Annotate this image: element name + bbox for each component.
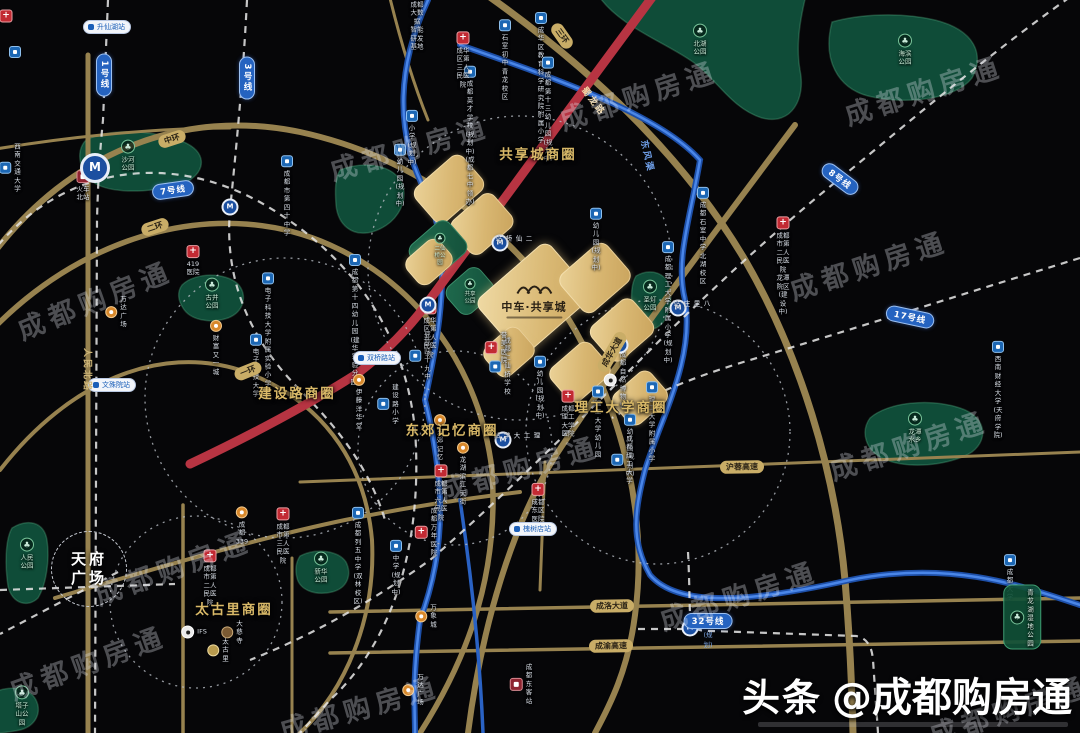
brown-icon — [221, 626, 233, 638]
school-icon — [406, 110, 418, 122]
park-label: 二仙桥公园 — [435, 246, 446, 267]
glyph-dot — [666, 245, 670, 249]
school-icon — [377, 398, 389, 410]
poi-label: 财富又一城 — [210, 334, 222, 376]
hospital-icon: + — [485, 342, 498, 355]
poi-school: 建设路小学 — [377, 383, 399, 425]
poi-school: 理工大学附属小学 — [646, 381, 658, 463]
station-pill: 槐树店站 — [509, 522, 557, 536]
metro-station-name: 二仙桥站 — [493, 235, 533, 243]
tree-icon: ♣ — [1010, 610, 1024, 624]
park-label: 人民公园 — [20, 554, 34, 571]
school-icon — [611, 454, 623, 466]
tree-icon: ♣ — [435, 233, 446, 244]
poi-label: 万象城 — [430, 603, 437, 628]
mall-icon — [415, 610, 427, 622]
road-label: 成渝高速 — [589, 639, 633, 653]
glyph-dot — [356, 511, 360, 515]
tianfu-line1: 天府 — [71, 550, 107, 569]
metro-line-pill: 1号线 — [96, 54, 112, 97]
glyph-dot — [461, 446, 465, 450]
glyph-dot — [546, 61, 550, 65]
tree-icon: ♣ — [465, 278, 476, 289]
poi-school: 石室初中 青龙校区 — [499, 19, 511, 101]
glyph-dot — [13, 50, 17, 54]
park-label: 北湖公园 — [693, 40, 707, 57]
business-circle-label: 共享城商圈 — [499, 143, 577, 163]
glyph-dot — [1008, 558, 1012, 562]
station-pill-label: 升仙湖站 — [97, 22, 125, 32]
poi-label: 成都第十四幼儿园 (建华实验分园) — [349, 268, 361, 386]
road-label: 沪蓉高速 — [720, 460, 764, 474]
tree-icon: ♣ — [121, 140, 135, 154]
poi-label: 成都市第四十中学 — [281, 169, 293, 237]
station-pill-label: 文殊院站 — [102, 380, 130, 390]
project-logo: 中车·共享城 — [501, 280, 566, 319]
metro-station: M — [80, 153, 110, 183]
school-icon — [590, 208, 602, 220]
poi-school: 成都列五中学 (双林校区) — [352, 507, 364, 605]
station-pill-label: 双桥路站 — [367, 353, 395, 363]
metro-station-name: 理工大学站 — [491, 432, 541, 440]
park-marker: ♣古井公园 — [205, 278, 219, 311]
mall-icon — [402, 684, 414, 696]
poi-tower: ⌂成都大数据 智能研发基地 — [410, 0, 424, 51]
school-icon — [349, 254, 361, 266]
glyph-dot — [628, 418, 632, 422]
glyph-dot — [214, 324, 218, 328]
poi-label: 成都339 — [236, 520, 248, 545]
tree-icon: ♣ — [908, 412, 922, 426]
poi-mall: 万达广场 — [105, 295, 127, 329]
poi-label: IFS — [197, 628, 207, 636]
poi-hospital: +419医院 — [187, 245, 200, 277]
poi-school: 小学 (规划中) — [406, 110, 418, 166]
glyph-dot — [353, 258, 357, 262]
school-icon — [662, 241, 674, 253]
poi-school: 成都第十四幼儿园 (建华实验分园) — [349, 254, 361, 386]
tree-icon: ♣ — [898, 34, 912, 48]
park-marker: ♣新华公园 — [314, 552, 328, 585]
train-glyph — [514, 526, 520, 532]
poi-label: 成都市第二人民医院 龙潭院区(建设中) — [777, 231, 790, 315]
school-icon — [394, 144, 406, 156]
road-label: 成洛大道 — [590, 599, 634, 613]
school-icon — [697, 187, 709, 199]
business-circle-label: 太古里商圈 — [195, 598, 273, 618]
white-icon — [604, 374, 617, 387]
hospital-icon: + — [532, 483, 545, 496]
park-label: 海滨公园 — [898, 50, 912, 67]
metro-line-pill: 3号线 — [239, 57, 255, 100]
metro-station-name: 八里庄站 — [671, 300, 711, 308]
school-icon — [992, 341, 1004, 353]
glyph-dot — [996, 345, 1000, 349]
poi-hospital: +成华区第三人民医院 — [457, 31, 470, 88]
park-marker: ♣塔子山公园 — [15, 685, 29, 726]
poi-school: 西南财经大学 (天府学院) — [992, 341, 1004, 439]
hospital-icon: + — [777, 216, 790, 229]
poi-hospital: +成都万年医院 — [415, 507, 438, 558]
glyph-dot — [381, 402, 385, 406]
poi-label: 建设路小学 — [392, 383, 399, 425]
mall-icon — [236, 506, 248, 518]
tree-icon: ♣ — [314, 552, 328, 566]
poi-mall: 财富又一城 — [210, 320, 222, 376]
school-icon — [262, 272, 274, 284]
poi-label: 成都东客站 — [526, 663, 533, 705]
poi-label: 万达广场 — [120, 295, 127, 329]
park-label: 共享公园 — [465, 291, 476, 305]
park-marker: ♣圣灯公园 — [643, 280, 657, 313]
poi-school: 成都理工大学 — [611, 435, 633, 486]
line-pill-label: 1号线 — [99, 61, 109, 90]
glyph-dot — [109, 310, 113, 314]
hospital-icon: + — [0, 10, 13, 23]
poi-label: 太古里 — [222, 637, 229, 662]
park-marker: ♣人民公园 — [20, 538, 34, 571]
glyph-dot — [410, 114, 414, 118]
line-pill-label: 32号线 — [692, 617, 725, 627]
poi-label: 幼儿园 (规划中) — [590, 222, 602, 273]
glyph-dot — [615, 458, 619, 462]
poi-label: 成都英才学校(规划中) (成都七中领办) — [464, 80, 476, 207]
road-label: 人民北路 — [82, 348, 95, 392]
poi-label: 石室初中 青龙校区 — [499, 33, 511, 101]
poi-white: IFS — [181, 626, 207, 639]
tianfu-line2: 广场 — [71, 569, 107, 588]
poi-label: 龙湖滨江天街 — [457, 456, 469, 507]
poi-hospital: +成都理工大学医院 — [562, 390, 575, 439]
poi-hospital: + — [0, 10, 13, 23]
poi-label: 成都东区医院 — [532, 498, 545, 523]
poi-label: 成都大数据 智能研发基地 — [410, 1, 424, 52]
park-label: 圣灯公园 — [643, 296, 657, 313]
poi-label: 419医院 — [187, 260, 200, 277]
school-icon — [1004, 554, 1016, 566]
glyph-dot — [419, 614, 423, 618]
park-label: 新华公园 — [314, 568, 328, 585]
park-marker: ♣二仙桥公园 — [435, 233, 446, 267]
mall-icon — [105, 306, 117, 318]
poi-school: 幼儿园 (规划中) — [534, 356, 546, 421]
hospital-icon: + — [277, 507, 290, 520]
glyph-dot — [285, 159, 289, 163]
brand-handle: @成都购房通 — [832, 665, 1072, 723]
poi-label: 成华区第五人民医院 — [424, 316, 437, 358]
poi-goldic: 太古里 — [207, 637, 229, 662]
brand-prefix: 头条 — [742, 667, 822, 722]
poi-mall: 万象城 — [415, 603, 437, 628]
glyph-dot — [406, 688, 410, 692]
poi-mall: 万达广场 — [402, 673, 424, 707]
glyph-dot — [596, 389, 600, 393]
school-icon — [542, 57, 554, 69]
train-icon — [510, 678, 523, 691]
glyph-dot — [608, 378, 612, 382]
poi-label: 西南交通大学 — [14, 143, 21, 194]
poi-school: 成都石室中学 北湖校区 — [697, 187, 709, 285]
poi-school: 幼儿园 (规划中) — [590, 208, 602, 273]
arch-icon — [501, 280, 566, 299]
glyph-dot — [650, 385, 654, 389]
metro-station: M — [222, 199, 239, 216]
tree-icon: ♣ — [15, 685, 29, 699]
tree-icon: ♣ — [20, 538, 34, 552]
line-planned-tag: (规划) — [703, 629, 712, 649]
poi-hospital: +成都市第二人民医院 龙潭院区(建设中) — [777, 216, 790, 315]
poi-mall: 伊藤洋华堂 — [353, 374, 365, 430]
park-label: 沙河公园 — [121, 156, 135, 173]
poi-school — [9, 46, 21, 58]
glyph-dot — [254, 338, 258, 342]
white-icon — [181, 626, 194, 639]
glyph-dot — [394, 544, 398, 548]
poi-train: 成都东客站 — [510, 663, 533, 705]
hospital-icon: + — [562, 390, 575, 403]
school-icon — [9, 46, 21, 58]
glyph-dot — [240, 510, 244, 514]
poi-mall: 龙湖滨江天街 — [457, 442, 469, 507]
glyph-dot — [594, 212, 598, 216]
park-label: 龙潭水乡 — [908, 428, 922, 445]
glyph-dot — [266, 276, 270, 280]
school-icon — [390, 540, 402, 552]
poi-school: 成都市第四十中学 — [281, 155, 293, 237]
glyph-dot — [357, 378, 361, 382]
poi-hospital: +成都东区医院 — [532, 483, 545, 523]
tree-icon: ♣ — [693, 24, 707, 38]
business-circle-label: 东郊记忆商圈 — [406, 419, 499, 439]
train-glyph — [358, 355, 364, 361]
poi-label: 伊藤洋华堂 — [353, 388, 365, 430]
hospital-icon: + — [415, 526, 428, 539]
poi-label: 万达广场 — [417, 673, 424, 707]
school-icon — [499, 19, 511, 31]
glyph-dot — [413, 354, 417, 358]
hospital-icon: + — [204, 549, 217, 562]
park-label: 古井公园 — [205, 294, 219, 311]
poi-label: 成都理工大学 — [626, 435, 633, 486]
station-pill: 升仙湖站 — [83, 20, 131, 34]
map-canvas: 中车·共享城 西南交通大学成都市第四十中学石室初中 青龙校区成华区教育科学 研究… — [0, 0, 1080, 733]
park-marker: ♣青龙湖湿地公园 — [1003, 584, 1041, 649]
line-pill-label: 3号线 — [242, 64, 252, 93]
goldic-icon — [207, 644, 219, 656]
glyph-dot — [539, 16, 543, 20]
station-pill-label: 槐树店站 — [523, 524, 551, 534]
poi-label: 成都理工大学医院 — [562, 405, 575, 439]
poi-label: 成都列五中学 (双林校区) — [352, 521, 364, 605]
park-marker: ♣沙河公园 — [121, 140, 135, 173]
park-marker: ♣北湖公园 — [693, 24, 707, 57]
hospital-icon: + — [435, 464, 448, 477]
park-marker: ♣龙潭水乡 — [908, 412, 922, 445]
poi-school: 电子科技大学 附属实验小学 — [262, 272, 274, 387]
school-icon — [534, 356, 546, 368]
station-pill: 双桥路站 — [353, 351, 401, 365]
school-icon — [352, 507, 364, 519]
mall-icon — [353, 374, 365, 386]
line-pill-label: 7号线 — [160, 184, 187, 198]
poi-label: 电子科技大学 附属实验小学 — [262, 286, 274, 387]
business-circle-label: 建设路商圈 — [258, 382, 336, 402]
poi-hospital: +成都市第三人民医院 — [277, 507, 290, 564]
school-icon — [409, 350, 421, 362]
poi-label: 火车北站 — [77, 185, 90, 202]
school-icon — [281, 155, 293, 167]
brand-logo: 头条 @成都购房通 — [742, 665, 1072, 723]
tree-icon: ♣ — [205, 278, 219, 292]
school-icon — [0, 162, 11, 174]
hospital-icon: + — [187, 245, 200, 258]
park-label: 青龙湖湿地公园 — [1027, 588, 1034, 647]
poi-school: 幼儿园 (规划中) — [394, 144, 406, 209]
poi-label: 中学 (规划中) — [390, 554, 402, 596]
poi-label: 誉美医院 — [501, 331, 508, 365]
school-icon — [250, 334, 262, 346]
poi-hospital: +誉美医院 — [485, 331, 508, 365]
park-marker: ♣共享公园 — [465, 278, 476, 305]
poi-label: 成都万年医院 — [431, 507, 438, 558]
project-name: 中车·共享城 — [501, 299, 566, 315]
metro-line-pill: 32号线 — [684, 613, 733, 629]
poi-school: 西南交通大学 — [0, 143, 21, 194]
glyph-dot — [186, 630, 190, 634]
glyph-dot — [701, 191, 705, 195]
park-label: 塔子山公园 — [15, 701, 29, 726]
glyph-dot — [503, 23, 507, 27]
poi-label: 成都石室中学 北湖校区 — [697, 201, 709, 285]
tianfu-square-label: 天府 广场 — [51, 531, 127, 607]
school-icon — [646, 381, 658, 393]
train-glyph — [88, 24, 94, 30]
poi-label: 西南财经大学 (天府学院) — [992, 355, 1004, 439]
mall-icon — [210, 320, 222, 332]
poi-mall: 成都339 — [236, 506, 248, 545]
glyph-dot — [398, 148, 402, 152]
school-icon — [535, 12, 547, 24]
poi-label: 小学 (规划中) — [406, 124, 418, 166]
park-marker: ♣海滨公园 — [898, 34, 912, 67]
tree-icon: ♣ — [643, 280, 657, 294]
business-circle-label: 理工大学商圈 — [575, 396, 668, 416]
poi-label: 成都市第三人民医院 — [277, 522, 290, 564]
hospital-icon: + — [457, 31, 470, 44]
station-pill: 文殊院站 — [88, 378, 136, 392]
poi-label: 幼儿园 (规划中) — [534, 370, 546, 421]
glyph-dot — [538, 360, 542, 364]
metro-station: M — [420, 297, 437, 314]
glyph-dot — [514, 682, 519, 687]
project-subline — [506, 317, 562, 319]
poi-label: 幼儿园 (规划中) — [394, 158, 406, 209]
poi-label: 成华区第三人民医院 — [457, 46, 470, 88]
poi-school: 中学 (规划中) — [390, 540, 402, 596]
mall-icon — [457, 442, 469, 454]
poi-label: 大慈寺 — [236, 619, 243, 644]
glyph-dot — [3, 166, 7, 170]
